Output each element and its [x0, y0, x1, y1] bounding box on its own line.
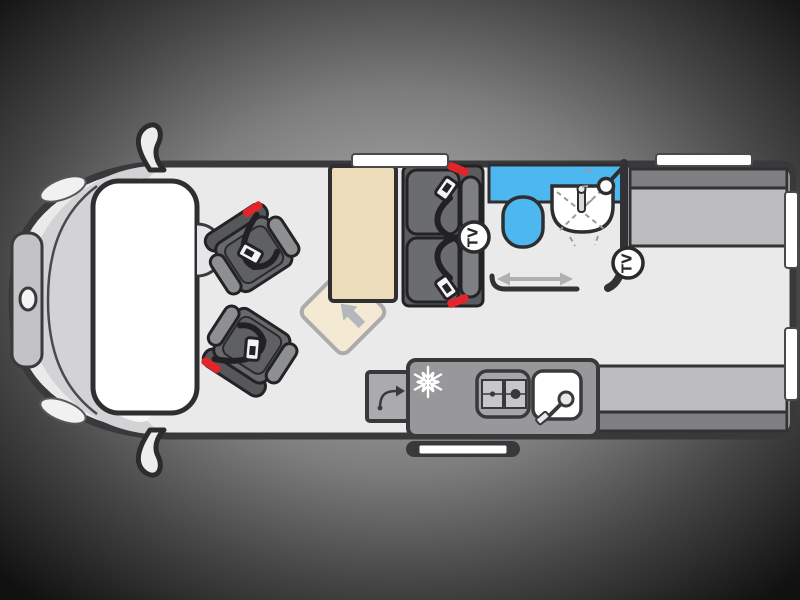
kitchen-sink — [533, 371, 581, 425]
worktop-extension — [367, 372, 411, 421]
window-rear-right-lower — [785, 328, 798, 400]
tv-badge: TV — [613, 248, 643, 278]
tv-badge-label: TV — [621, 253, 636, 273]
rear-bench-bottom-backrest — [596, 412, 787, 431]
window-top-rear — [656, 154, 752, 166]
campervan-floorplan: TV TV — [0, 0, 800, 600]
rear-bench-bottom — [596, 366, 787, 414]
floorplan-canvas: TV TV — [0, 0, 800, 600]
windshield — [93, 181, 197, 413]
toilet — [503, 197, 543, 247]
table-top — [330, 166, 396, 301]
hob-icon — [477, 371, 529, 417]
tv-badge-label: TV — [467, 227, 482, 247]
entry-step — [406, 441, 520, 457]
rear-bench-top — [630, 188, 787, 246]
rear-bench-top-backrest — [630, 169, 787, 188]
bumper-emblem — [20, 288, 36, 310]
tv-badge: TV — [459, 222, 489, 252]
window-top-middle — [352, 154, 448, 167]
window-rear-right-upper — [785, 192, 798, 268]
